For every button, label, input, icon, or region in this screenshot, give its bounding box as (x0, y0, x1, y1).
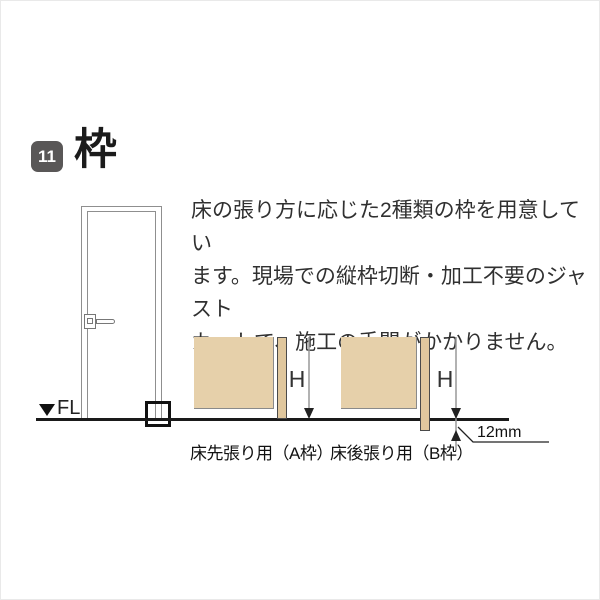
diagram-b-caption: 床後張り用（B枠） (330, 439, 473, 464)
door-handle-lever-icon (96, 319, 115, 324)
door-panel-outline (87, 211, 156, 419)
door-handle-latch-icon (87, 318, 93, 324)
diagram-a-wall-section (194, 337, 274, 409)
diagram-a-caption: 床先張り用（A枠） (190, 439, 333, 464)
diagram-a-height-label: H (284, 366, 310, 393)
diagram-b-height-label: H (432, 366, 458, 393)
section-title: 枠 (74, 127, 117, 174)
floor-line (36, 418, 509, 421)
diagram-b-vertical-frame (420, 337, 430, 431)
description-text: 床の張り方に応じた2種類の枠を用意してい ます。現場での縦枠切断・加工不要のジャ… (191, 194, 595, 359)
catalog-page: 11 枠 床の張り方に応じた2種類の枠を用意してい ます。現場での縦枠切断・加工… (0, 0, 600, 600)
section-number-badge: 11 (31, 141, 63, 172)
diagram-b-wall-section (341, 337, 417, 409)
floor-level-label: FL (57, 397, 80, 420)
offset-12mm-label: 12mm (477, 424, 521, 442)
floor-level-triangle-icon (39, 404, 55, 416)
frame-bottom-highlight-box (145, 401, 171, 427)
